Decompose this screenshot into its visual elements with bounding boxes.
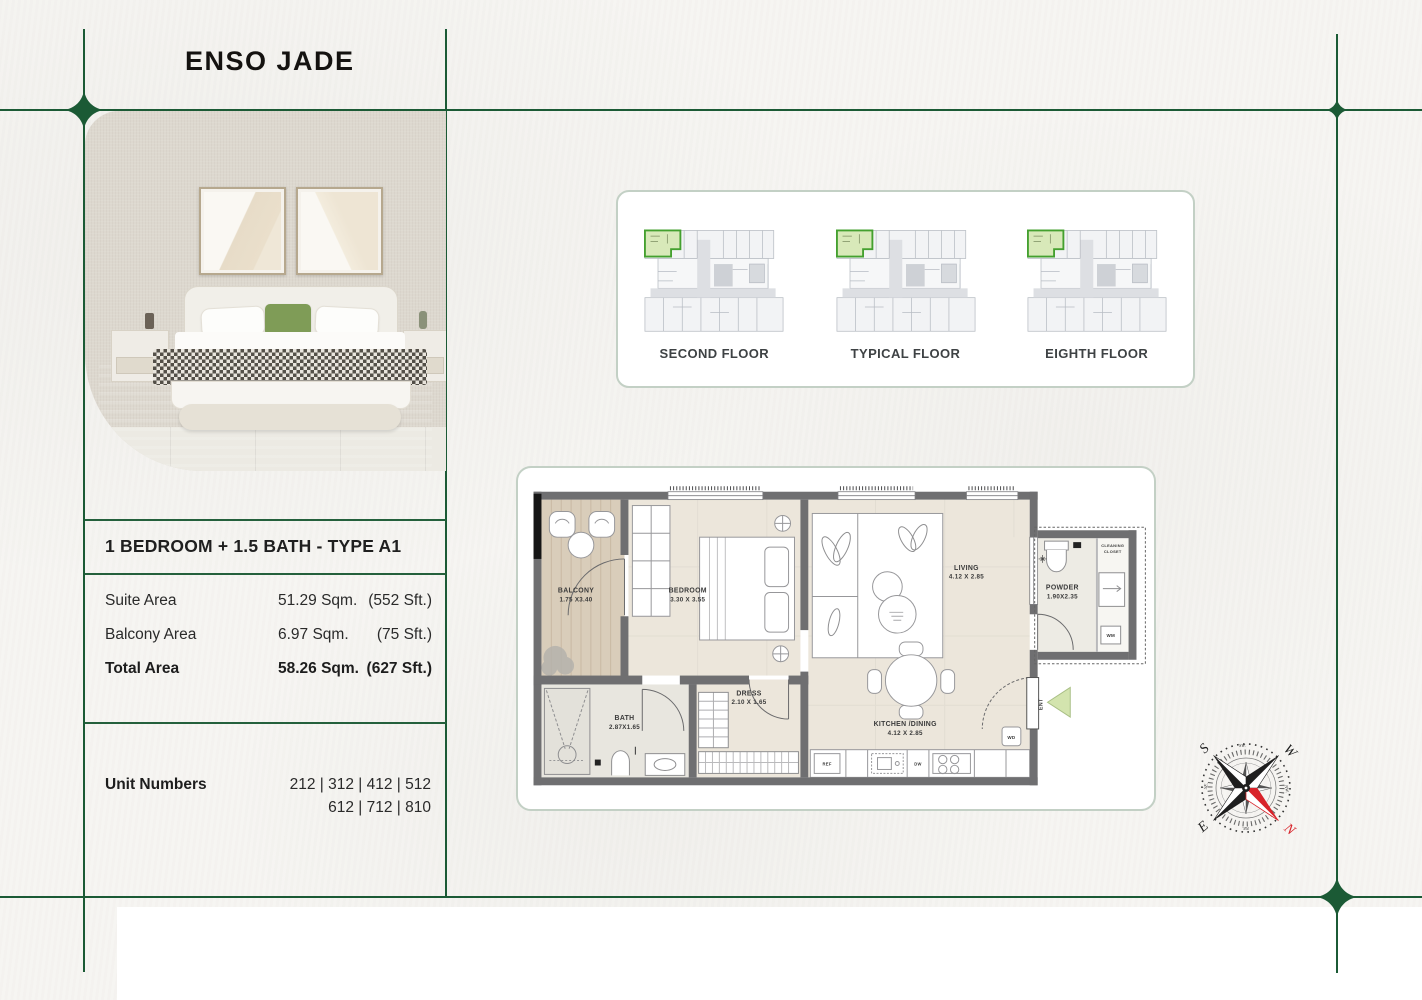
- label-dress: DRESS: [736, 690, 761, 697]
- wall-bed-bath-1: [534, 676, 643, 685]
- label-bedroom-dims: 3.30 X 3.55: [670, 596, 705, 603]
- dining-chair-n: [899, 642, 923, 656]
- photo-blanket: [153, 349, 427, 385]
- powder-cistern: [1045, 541, 1069, 550]
- label-kitchen: KITCHEN /DINING: [874, 721, 937, 728]
- keyplan-label-eighth: EIGHTH FLOOR: [1045, 346, 1148, 361]
- wall-left-lower: [534, 678, 542, 786]
- unit-numbers-label: Unit Numbers: [105, 776, 207, 794]
- label-bath: BATH: [615, 715, 635, 722]
- balcony-chair-left: [549, 511, 575, 537]
- compass-rose: S W E N SW. NW. NE. SE.: [1189, 729, 1303, 847]
- photo-lamp: [145, 313, 154, 329]
- divider-title-top: [85, 519, 446, 521]
- closet-sink: [1099, 573, 1125, 607]
- wall-balcony-lower: [621, 616, 629, 677]
- wall-annex-top: [1038, 530, 1137, 538]
- photo-artframe-right: [296, 187, 383, 275]
- label-balcony-dims: 1.75 X3.40: [560, 596, 593, 603]
- compass-letter-w: W: [1280, 742, 1300, 762]
- label-balcony: BALCONY: [558, 588, 594, 595]
- bedroom-pillow-2: [765, 593, 789, 633]
- star-ornament-bottomright: [1315, 875, 1359, 919]
- wall-right-1: [1030, 492, 1038, 537]
- total-area-sqm: 58.26 Sqm.: [278, 660, 359, 678]
- label-entry: ENT: [1039, 698, 1045, 710]
- keyplan-typical-floor: TYPICAL FLOOR: [811, 223, 1001, 361]
- suite-area-label: Suite Area: [105, 592, 177, 610]
- label-wd: WD: [1007, 735, 1016, 740]
- living-table-large: [879, 596, 917, 634]
- balcony-area-sft: (75 Sft.): [377, 626, 432, 644]
- wall-annex-right: [1129, 530, 1137, 659]
- wall-balcony-upper: [621, 500, 629, 555]
- keyplan-label-second: SECOND FLOOR: [660, 346, 770, 361]
- wall-left-black: [534, 494, 542, 559]
- balcony-area-label: Balcony Area: [105, 626, 196, 644]
- label-living: LIVING: [954, 565, 979, 572]
- wall-dress-kitchen: [800, 672, 808, 778]
- label-bedroom: BEDROOM: [669, 588, 707, 595]
- unit-type-title: 1 BEDROOM + 1.5 BATH - TYPE A1: [105, 536, 401, 557]
- keyplan-map-second: [639, 223, 789, 335]
- star-ornament-topright: [1325, 98, 1349, 122]
- wall-bed-living: [800, 500, 808, 630]
- keyplan-label-typical: TYPICAL FLOOR: [851, 346, 961, 361]
- photo-artframe-left: [199, 187, 286, 275]
- wall-bottom: [534, 777, 1038, 785]
- wall-bath-dress: [689, 684, 697, 777]
- area-row-balcony: Balcony Area 6.97 Sqm. (75 Sft.): [105, 626, 432, 646]
- brochure-page: ENSO JADE 1 BEDROOM + 1.5 BATH - TYPE A1…: [0, 0, 1422, 1000]
- dining-chair-s: [899, 705, 923, 719]
- floor-plan-card: BALCONY 1.75 X3.40 BEDROOM 3.30 X 3.55 L…: [516, 466, 1156, 811]
- bedroom-photo: [85, 111, 446, 471]
- keyplan-eighth-floor: EIGHTH FLOOR: [1002, 223, 1192, 361]
- compass-tiny-ne: NE.: [1242, 826, 1250, 831]
- wall-right-2: [1030, 604, 1038, 614]
- label-cleaning: CLEANING: [1101, 543, 1124, 548]
- label-dress-dims: 2.10 X 1.65: [731, 699, 766, 706]
- unit-numbers-line2: 612 | 712 | 810: [328, 799, 431, 817]
- grid-hline-bottom: [0, 896, 1422, 898]
- key-plans-card: SECOND FLOOR TYPICAL FLO: [616, 190, 1195, 388]
- floor-plan-drawing: BALCONY 1.75 X3.40 BEDROOM 3.30 X 3.55 L…: [518, 468, 1154, 809]
- label-wm: WM: [1106, 633, 1115, 638]
- label-ref: REF: [823, 762, 832, 767]
- keyplan-map-typical: [831, 223, 981, 335]
- label-bath-dims: 2.87X1.65: [609, 724, 640, 731]
- grid-vline-right: [1336, 34, 1338, 973]
- photo-bed-base: [179, 404, 401, 430]
- dining-chair-w: [868, 670, 882, 694]
- label-dw: DW: [914, 762, 922, 767]
- suite-area-sft: (552 Sft.): [368, 592, 432, 610]
- bath-toilet: [612, 751, 630, 776]
- unit-numbers-line1: 212 | 312 | 412 | 512: [290, 776, 431, 794]
- wall-bed-bath-2: [680, 676, 749, 685]
- wall-powder-closet: [1096, 538, 1098, 652]
- bath-shower: [544, 688, 589, 774]
- keyplan-map-eighth: [1022, 223, 1172, 335]
- label-powder: POWDER: [1046, 585, 1079, 592]
- bottom-white-panel: [117, 907, 1422, 1000]
- label-powder-dims: 1.90X2.35: [1047, 593, 1078, 600]
- photo-vase: [419, 311, 427, 329]
- divider-units-top: [85, 722, 446, 724]
- compass-letter-n: N: [1280, 820, 1298, 839]
- divider-title-bottom: [85, 573, 446, 575]
- wall-right-4: [1030, 729, 1038, 785]
- bedroom-pillow-1: [765, 547, 789, 587]
- area-row-suite: Suite Area 51.29 Sqm. (552 Sft.): [105, 592, 432, 612]
- label-living-dims: 4.12 X 2.85: [949, 574, 984, 581]
- powder-toilet: [1047, 550, 1067, 572]
- door-entry-leaf: [1027, 678, 1039, 729]
- total-area-label: Total Area: [105, 660, 179, 678]
- area-row-total: Total Area 58.26 Sqm. (627 Sft.): [105, 660, 432, 680]
- dining-table: [885, 655, 936, 706]
- compass-tiny-sw: SW.: [1239, 743, 1246, 748]
- compass-letter-s: S: [1197, 741, 1213, 757]
- dining-chair-e: [941, 670, 955, 694]
- label-kitchen-dims: 4.12 X 2.85: [888, 730, 923, 737]
- entry-arrow: [1048, 687, 1071, 717]
- suite-area-sqm: 51.29 Sqm.: [278, 592, 357, 610]
- compass-tiny-nw: NW.: [1284, 784, 1290, 794]
- brand-logo: ENSO JADE: [185, 46, 355, 77]
- wall-annex-bottom: [1038, 652, 1129, 660]
- label-closet: CLOSET: [1104, 549, 1122, 554]
- compass-letter-e: E: [1195, 818, 1212, 836]
- total-area-sft: (627 Sft.): [367, 660, 432, 678]
- balcony-area-sqm: 6.97 Sqm.: [278, 626, 349, 644]
- balcony-chair-right: [589, 511, 615, 537]
- wall-top: [534, 492, 1038, 500]
- keyplan-second-floor: SECOND FLOOR: [619, 223, 809, 361]
- compass-tiny-se: SE.: [1203, 782, 1209, 789]
